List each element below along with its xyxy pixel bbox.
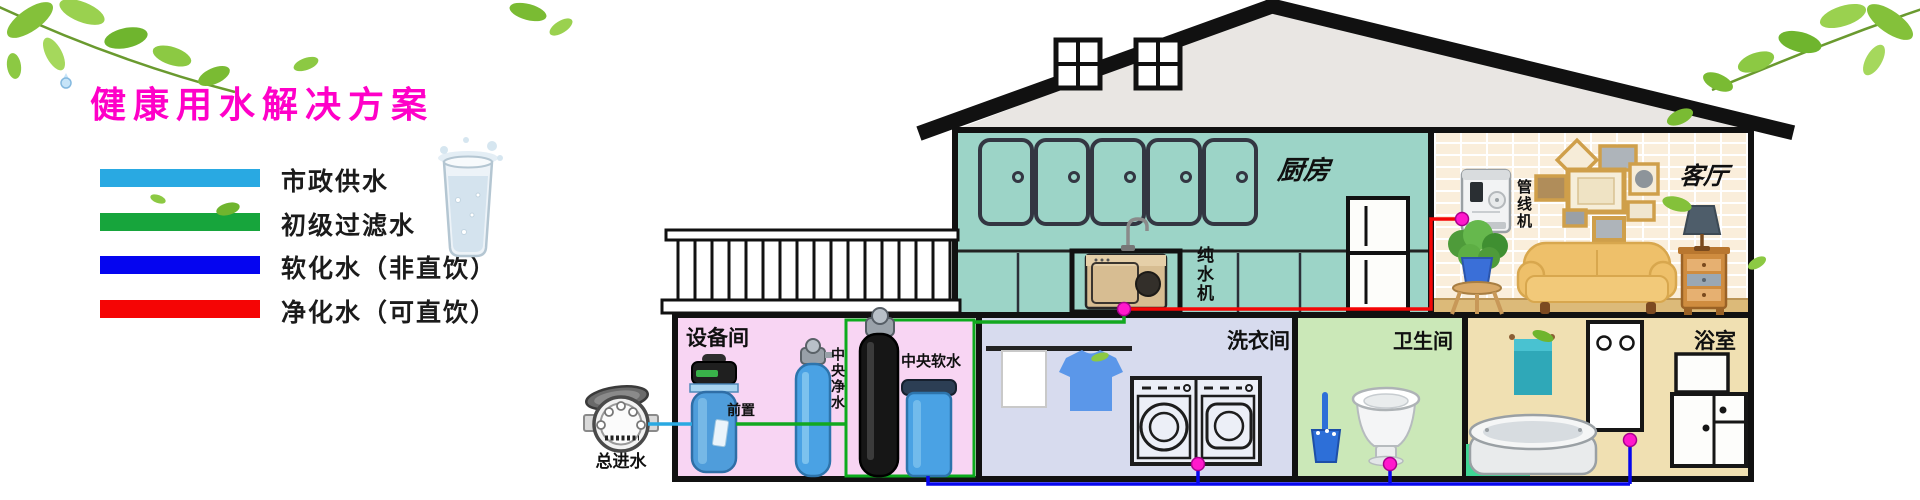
laundry-room-label: 洗衣间 [1227,325,1290,355]
kitchen-cabinets [980,140,1256,224]
side-table [1678,247,1730,315]
bathroom-label: 浴室 [1694,325,1736,355]
hanging-towel [1002,351,1046,407]
page-title: 健康用水解决方案 [90,76,434,128]
toilet-brush [1312,392,1340,462]
equipment-room-label: 设备间 [686,322,749,352]
potted-plant [1448,220,1508,314]
brine-tank [902,380,956,476]
living-room-label: 客厅 [1678,156,1730,191]
roof [926,6,1786,131]
refrigerator [1348,198,1408,312]
pipe-purified [1124,219,1461,309]
kitchen-label: 厨房 [1276,150,1332,187]
table-lamp [1684,206,1720,251]
central-softener-label: 中央软水 [901,350,961,371]
water-glass [438,137,503,256]
gable-window [1136,40,1180,88]
bath-towel [1509,334,1555,395]
shower-panel [1588,322,1642,430]
water-meter [584,383,658,451]
pure-water-machine-label: 纯水机 [1191,246,1216,303]
pure-water-machine [1086,255,1166,308]
gable-window [1056,40,1100,88]
main-inlet-label: 总进水 [586,447,656,472]
house-scene [0,0,1920,500]
toilet-fixture [1353,388,1419,466]
vanity-cabinet [1672,394,1746,466]
sofa [1518,243,1676,314]
laundry-rail [986,346,1132,411]
picture-frames [1536,140,1658,240]
vanity-mirror [1676,354,1728,392]
bathtub [1470,415,1596,474]
fence [662,230,960,313]
hanging-shirt [1059,350,1123,411]
central-softener-tank [860,308,898,476]
central-purifier-label: 中央净水 [827,347,847,411]
banner: 健康用水解决方案 市政供水 初级过滤水 软化水（非直饮） 净化水（可直饮） 厨房… [0,0,1920,500]
toilet-room-label: 卫生间 [1393,325,1453,354]
prefilter-label: 前置 [727,400,755,420]
washing-machines [1132,378,1260,464]
pipeline-machine-label: 管线机 [1514,179,1535,230]
